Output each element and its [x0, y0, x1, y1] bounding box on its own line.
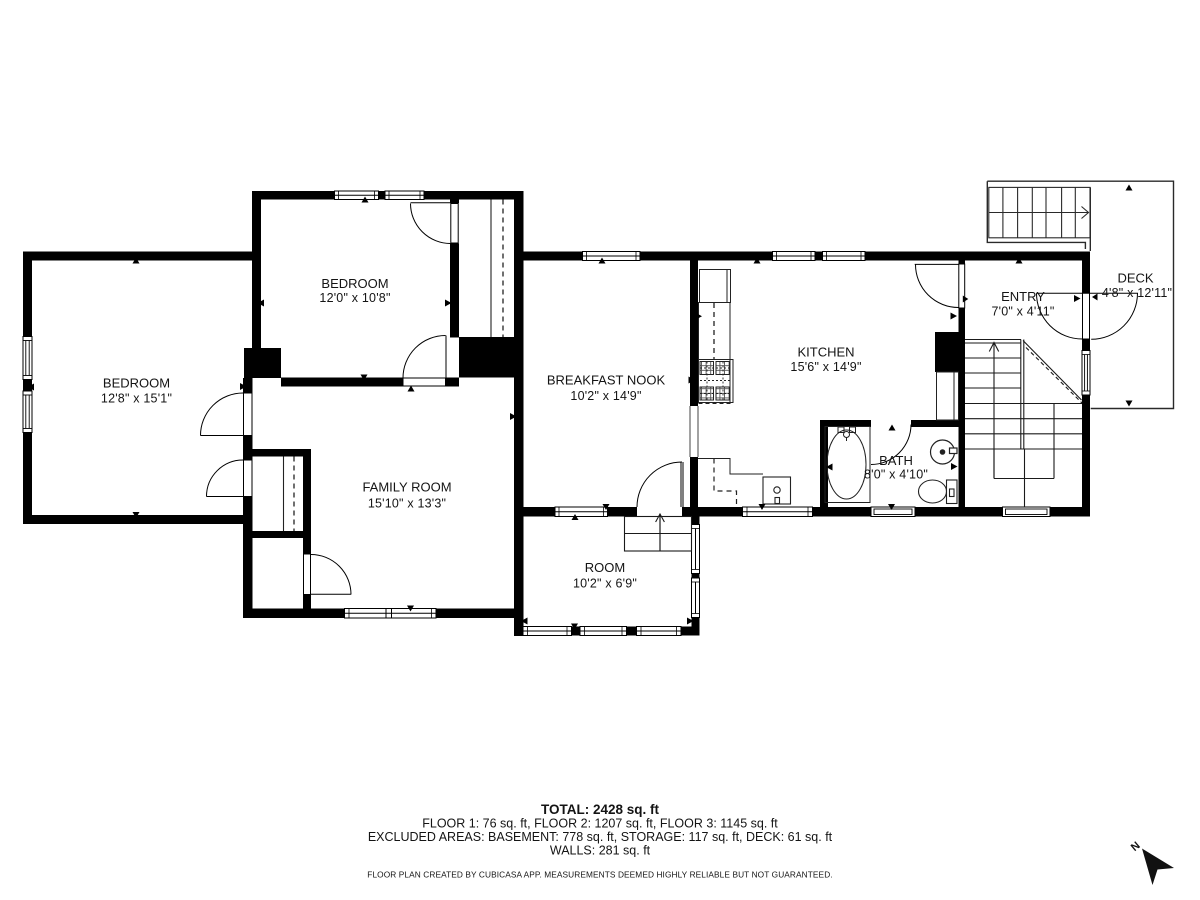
svg-text:FLOOR PLAN CREATED BY CUBICASA: FLOOR PLAN CREATED BY CUBICASA APP. MEAS…: [367, 870, 832, 880]
svg-text:15'6" x 14'9": 15'6" x 14'9": [790, 360, 861, 374]
svg-text:4'8" x 12'11": 4'8" x 12'11": [1102, 286, 1172, 300]
svg-text:BATH: BATH: [879, 453, 913, 468]
svg-text:DECK: DECK: [1117, 271, 1153, 286]
svg-text:WALLS: 281 sq. ft: WALLS: 281 sq. ft: [550, 844, 651, 858]
svg-text:BEDROOM: BEDROOM: [103, 376, 170, 391]
svg-text:12'0" x 10'8": 12'0" x 10'8": [319, 291, 390, 305]
svg-text:7'0" x 4'11": 7'0" x 4'11": [991, 305, 1054, 319]
svg-text:ROOM: ROOM: [585, 560, 625, 575]
svg-text:10'2" x 6'9": 10'2" x 6'9": [573, 577, 637, 591]
svg-text:BEDROOM: BEDROOM: [321, 276, 388, 291]
svg-text:FAMILY ROOM: FAMILY ROOM: [362, 480, 451, 495]
svg-text:FLOOR 1: 76 sq. ft, FLOOR 2: 1: FLOOR 1: 76 sq. ft, FLOOR 2: 1207 sq. ft…: [422, 817, 778, 831]
svg-text:ENTRY: ENTRY: [1001, 289, 1045, 304]
svg-text:TOTAL: 2428 sq. ft: TOTAL: 2428 sq. ft: [541, 802, 660, 817]
svg-text:BREAKFAST NOOK: BREAKFAST NOOK: [547, 373, 666, 388]
svg-text:KITCHEN: KITCHEN: [797, 345, 854, 360]
svg-text:15'10" x 13'3": 15'10" x 13'3": [368, 497, 446, 511]
svg-text:EXCLUDED AREAS: BASEMENT: 778: EXCLUDED AREAS: BASEMENT: 778 sq. ft, ST…: [368, 830, 833, 844]
svg-text:10'2" x 14'9": 10'2" x 14'9": [570, 389, 641, 403]
svg-text:8'0" x 4'10": 8'0" x 4'10": [864, 468, 928, 482]
svg-text:12'8" x 15'1": 12'8" x 15'1": [101, 392, 172, 406]
